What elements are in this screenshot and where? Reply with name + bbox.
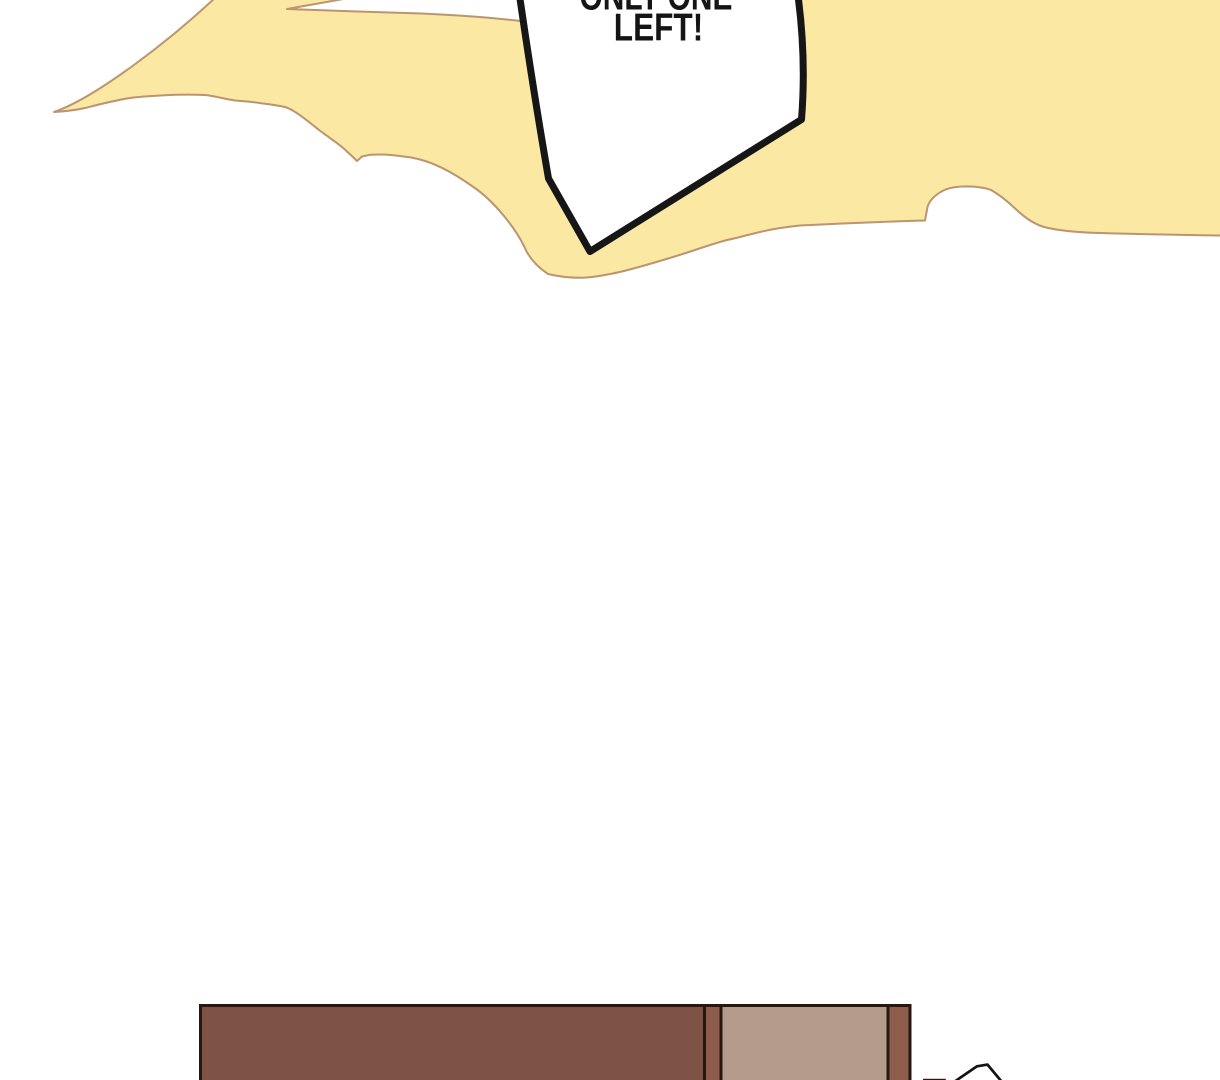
svg-text:LEFT!: LEFT! xyxy=(614,5,703,49)
